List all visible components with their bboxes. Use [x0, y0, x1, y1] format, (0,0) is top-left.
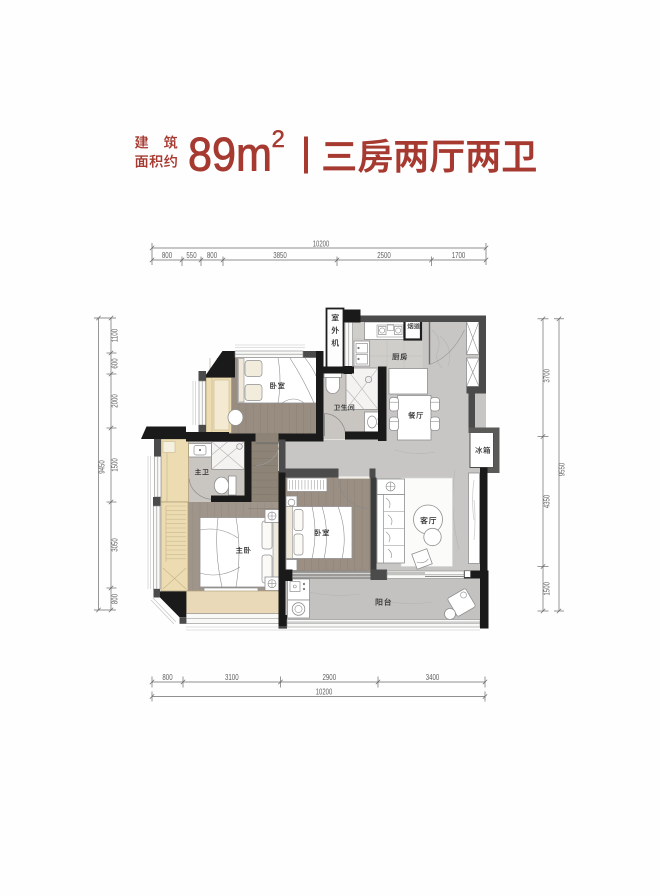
svg-text:800: 800	[162, 672, 172, 682]
svg-text:4350: 4350	[542, 494, 552, 508]
svg-text:2: 2	[272, 126, 285, 153]
svg-text:1100: 1100	[110, 328, 120, 342]
svg-text:1500: 1500	[110, 458, 120, 472]
svg-text:1700: 1700	[452, 250, 466, 260]
svg-text:3050: 3050	[110, 538, 120, 552]
svg-text:3700: 3700	[542, 369, 552, 383]
svg-text:2900: 2900	[323, 672, 337, 682]
svg-text:3100: 3100	[225, 672, 239, 682]
svg-text:1500: 1500	[542, 582, 552, 596]
svg-text:9450: 9450	[97, 460, 107, 474]
svg-text:9550: 9550	[557, 462, 567, 476]
svg-text:550: 550	[186, 250, 196, 260]
svg-text:89m: 89m	[188, 129, 272, 182]
svg-text:800: 800	[110, 594, 120, 604]
svg-text:2000: 2000	[110, 394, 120, 408]
svg-text:800: 800	[207, 250, 217, 260]
svg-text:600: 600	[110, 358, 120, 368]
svg-text:3400: 3400	[426, 672, 440, 682]
svg-text:10200: 10200	[316, 687, 333, 697]
svg-text:2500: 2500	[377, 250, 391, 260]
svg-text:800: 800	[162, 250, 172, 260]
svg-text:3850: 3850	[273, 250, 287, 260]
svg-text:10200: 10200	[313, 239, 330, 249]
